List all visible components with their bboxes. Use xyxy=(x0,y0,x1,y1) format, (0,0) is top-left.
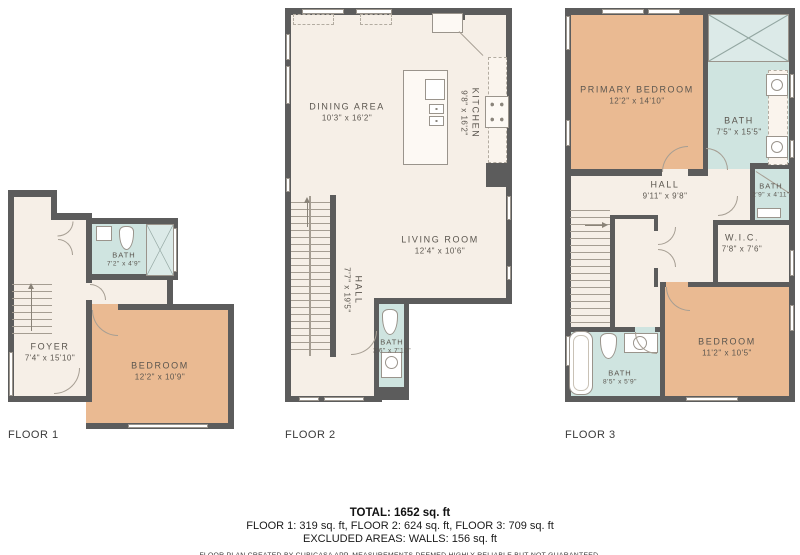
window xyxy=(286,178,290,192)
window xyxy=(324,397,364,401)
room-label-wic: W.I.C. 7'8" x 7'6" xyxy=(722,233,762,254)
window xyxy=(286,34,290,60)
room-dims: 10'3" x 16'2" xyxy=(309,114,385,123)
wall xyxy=(565,396,795,402)
window xyxy=(566,120,570,146)
wall xyxy=(228,304,234,429)
room-dims: 7'8" x 7'6" xyxy=(722,245,762,254)
room-name: DINING AREA xyxy=(309,102,385,112)
room-label-bath-f2: BATH 2'6" x 7'10" xyxy=(373,338,411,355)
room-dims: 7'7" x 19'5" xyxy=(343,267,352,312)
excluded-areas: EXCLUDED AREAS: WALLS: 156 sq. ft xyxy=(0,533,800,545)
window xyxy=(9,352,13,396)
room-label-kitchen: KITCHEN 9'8" x 16'2" xyxy=(460,88,481,139)
room-label-bedroom-f1: BEDROOM 12'2" x 10'9" xyxy=(131,361,189,382)
wall xyxy=(86,300,92,402)
room-name: LIVING ROOM xyxy=(401,235,479,245)
shower xyxy=(708,14,789,62)
room-label-bath-f3: BATH 8'5" x 5'9" xyxy=(603,369,637,386)
window xyxy=(790,305,794,331)
wall xyxy=(330,195,336,357)
wall xyxy=(610,215,615,332)
bathtub-inner xyxy=(573,335,589,391)
sink-bowl xyxy=(771,141,783,153)
sink-bowl xyxy=(771,79,783,91)
floor-2-label: FLOOR 2 xyxy=(285,429,336,441)
window xyxy=(128,424,208,428)
floor-1-label: FLOOR 1 xyxy=(8,429,59,441)
upper-cabinet xyxy=(293,14,334,25)
stairs-direction-line xyxy=(31,289,32,331)
room-name: HALL xyxy=(643,180,688,190)
room-label-living: LIVING ROOM 12'4" x 10'6" xyxy=(401,235,479,256)
window xyxy=(790,74,794,98)
room-dims: 12'4" x 10'6" xyxy=(401,247,479,256)
room-label-bath-f1: BATH 7'2" x 4'9" xyxy=(107,251,141,268)
room-label-small-bath: BATH 2'9" x 4'11" xyxy=(752,182,790,199)
room-label-hall-f3: HALL 9'11" x 9'8" xyxy=(643,180,688,201)
wall xyxy=(789,8,795,402)
bathtub xyxy=(569,331,593,395)
room-label-primary-bedroom: PRIMARY BEDROOM 12'2" x 14'10" xyxy=(580,85,694,106)
room-name: BEDROOM xyxy=(698,337,756,347)
window xyxy=(648,9,680,14)
kitchen-block xyxy=(486,163,512,187)
wall xyxy=(660,282,665,402)
bathroom-sink xyxy=(96,226,112,241)
floor-3-label: FLOOR 3 xyxy=(565,429,616,441)
room-name: PRIMARY BEDROOM xyxy=(580,85,694,95)
window xyxy=(507,266,511,280)
island-cooktop xyxy=(429,116,444,126)
window xyxy=(790,140,794,158)
per-floor-areas: FLOOR 1: 319 sq. ft, FLOOR 2: 624 sq. ft… xyxy=(0,520,800,532)
window xyxy=(507,196,511,220)
room-dims: 2'9" x 4'11" xyxy=(752,192,790,199)
floor-plan-canvas: FOYER 7'4" x 15'10" BATH 7'2" x 4'9" BED… xyxy=(0,0,800,555)
room-name: BATH xyxy=(603,369,637,378)
window xyxy=(686,397,738,401)
window xyxy=(790,250,794,276)
wall xyxy=(8,396,92,402)
wall xyxy=(654,268,658,287)
stairs-up-arrow xyxy=(28,283,34,289)
room-name: FOYER xyxy=(25,342,75,352)
room-name: BATH xyxy=(373,338,411,347)
room-name: W.I.C. xyxy=(722,233,762,243)
window xyxy=(286,66,290,104)
shower xyxy=(146,224,174,276)
room-dims: 7'4" x 15'10" xyxy=(25,354,75,363)
window xyxy=(566,16,570,50)
wall xyxy=(713,220,718,287)
room-label-foyer: FOYER 7'4" x 15'10" xyxy=(25,342,75,363)
room-label-bedroom-f3: BEDROOM 11'2" x 10'5" xyxy=(698,337,756,358)
wall xyxy=(374,298,512,304)
stairs-arrow xyxy=(602,222,608,228)
wall xyxy=(713,220,795,225)
room-label-primary-bath: BATH 7'5" x 15'5" xyxy=(716,116,761,137)
room-name: BATH xyxy=(716,116,761,126)
room-dims: 9'11" x 9'8" xyxy=(643,192,688,201)
kitchen-cabinet xyxy=(432,13,463,33)
wall xyxy=(688,282,795,287)
wall xyxy=(374,387,409,400)
bathroom-sink xyxy=(757,208,781,218)
stove xyxy=(485,96,509,128)
room-name: KITCHEN xyxy=(471,88,481,139)
sink-bowl xyxy=(385,356,398,369)
room-dims: 7'5" x 15'5" xyxy=(716,128,761,137)
room-dims: 12'2" x 10'9" xyxy=(131,373,189,382)
stairs-direction-line xyxy=(307,203,308,227)
room-label-dining: DINING AREA 10'3" x 16'2" xyxy=(309,102,385,123)
wall xyxy=(118,304,234,310)
total-area: TOTAL: 1652 sq. ft xyxy=(0,507,800,519)
area-summary: TOTAL: 1652 sq. ft FLOOR 1: 319 sq. ft, … xyxy=(0,507,800,555)
room-dims: 9'8" x 16'2" xyxy=(460,88,469,139)
room-name: BATH xyxy=(752,182,790,191)
window xyxy=(602,9,644,14)
window xyxy=(299,397,319,401)
wall xyxy=(565,169,662,176)
room-name: BATH xyxy=(107,251,141,260)
wall xyxy=(86,215,92,283)
wall xyxy=(8,190,57,197)
stairs-divider xyxy=(309,196,311,356)
room-name: BEDROOM xyxy=(131,361,189,371)
room-dims: 12'2" x 14'10" xyxy=(580,97,694,106)
room-dims: 8'5" x 5'9" xyxy=(603,379,637,386)
room-dims: 11'2" x 10'5" xyxy=(698,349,756,358)
room-dims: 2'6" x 7'10" xyxy=(373,348,411,355)
wall xyxy=(610,215,658,219)
room-wic xyxy=(713,220,795,287)
island-sink xyxy=(425,79,445,100)
room-label-hall-f2: HALL 7'7" x 19'5" xyxy=(343,267,364,312)
room-dims: 7'2" x 4'9" xyxy=(107,261,141,268)
island-cooktop xyxy=(429,104,444,114)
room-name: HALL xyxy=(354,267,364,312)
upper-cabinet xyxy=(360,14,392,25)
stairs-direction-line xyxy=(585,225,603,226)
